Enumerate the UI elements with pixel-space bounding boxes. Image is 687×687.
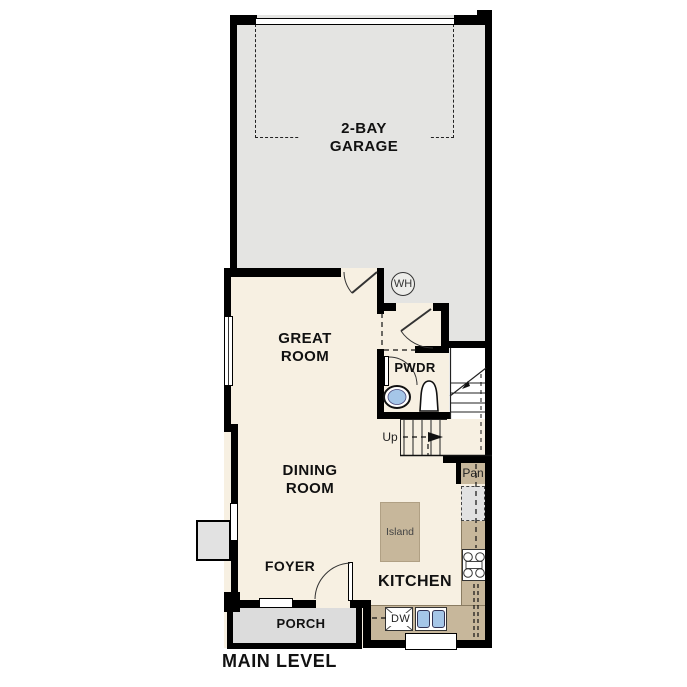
garage-door (256, 18, 454, 25)
pwdr-door-leaf (384, 356, 389, 386)
dishwasher-label: DW (390, 613, 410, 626)
entry-door-leaf (348, 562, 353, 601)
sink-basin-right (432, 610, 445, 628)
door-opening-vestibule (396, 303, 433, 311)
refrigerator (461, 486, 485, 521)
floor-plan: Island WH (0, 0, 687, 687)
wall-garage-left (230, 15, 237, 272)
wall-pwdr-left (377, 349, 384, 419)
garage-label: 2-BAY GARAGE (299, 120, 429, 164)
kitchen-label: KITCHEN (375, 573, 455, 592)
wall-stairwell-top (449, 341, 492, 348)
porch-label: PORCH (262, 616, 340, 631)
window-dining (230, 503, 238, 541)
wall-right (485, 10, 492, 648)
stove (462, 549, 486, 581)
window-kitchen-bay (405, 633, 457, 650)
wall-greatroom-top (224, 268, 341, 277)
island-label: Island (386, 526, 414, 538)
wall-garage-top-left (230, 15, 257, 25)
wall-pantry-top (443, 456, 492, 463)
pwdr-label: PWDR (390, 360, 440, 375)
stairwell (449, 348, 485, 419)
water-heater-label: WH (394, 278, 412, 290)
door-opening-entry (316, 600, 350, 608)
window-porch (259, 598, 293, 608)
window-great-room (224, 316, 233, 386)
kitchen-island: Island (380, 502, 420, 562)
foyer-label: FOYER (258, 558, 322, 575)
wall-pantry-left (456, 463, 461, 484)
door-opening-garage-greatroom (341, 268, 377, 277)
fireplace-bump-out (196, 520, 231, 561)
dining-room-label: DINING ROOM (255, 462, 365, 497)
wall-pwdr-bottom (377, 412, 451, 419)
sink-basin-left (417, 610, 430, 628)
water-heater: WH (391, 272, 415, 296)
up-label: Up (379, 430, 401, 444)
wall-pwdr-top (415, 346, 449, 353)
pantry-label: Pan (462, 466, 484, 480)
plan-caption: MAIN LEVEL (222, 651, 337, 672)
great-room-label: GREAT ROOM (250, 330, 360, 365)
